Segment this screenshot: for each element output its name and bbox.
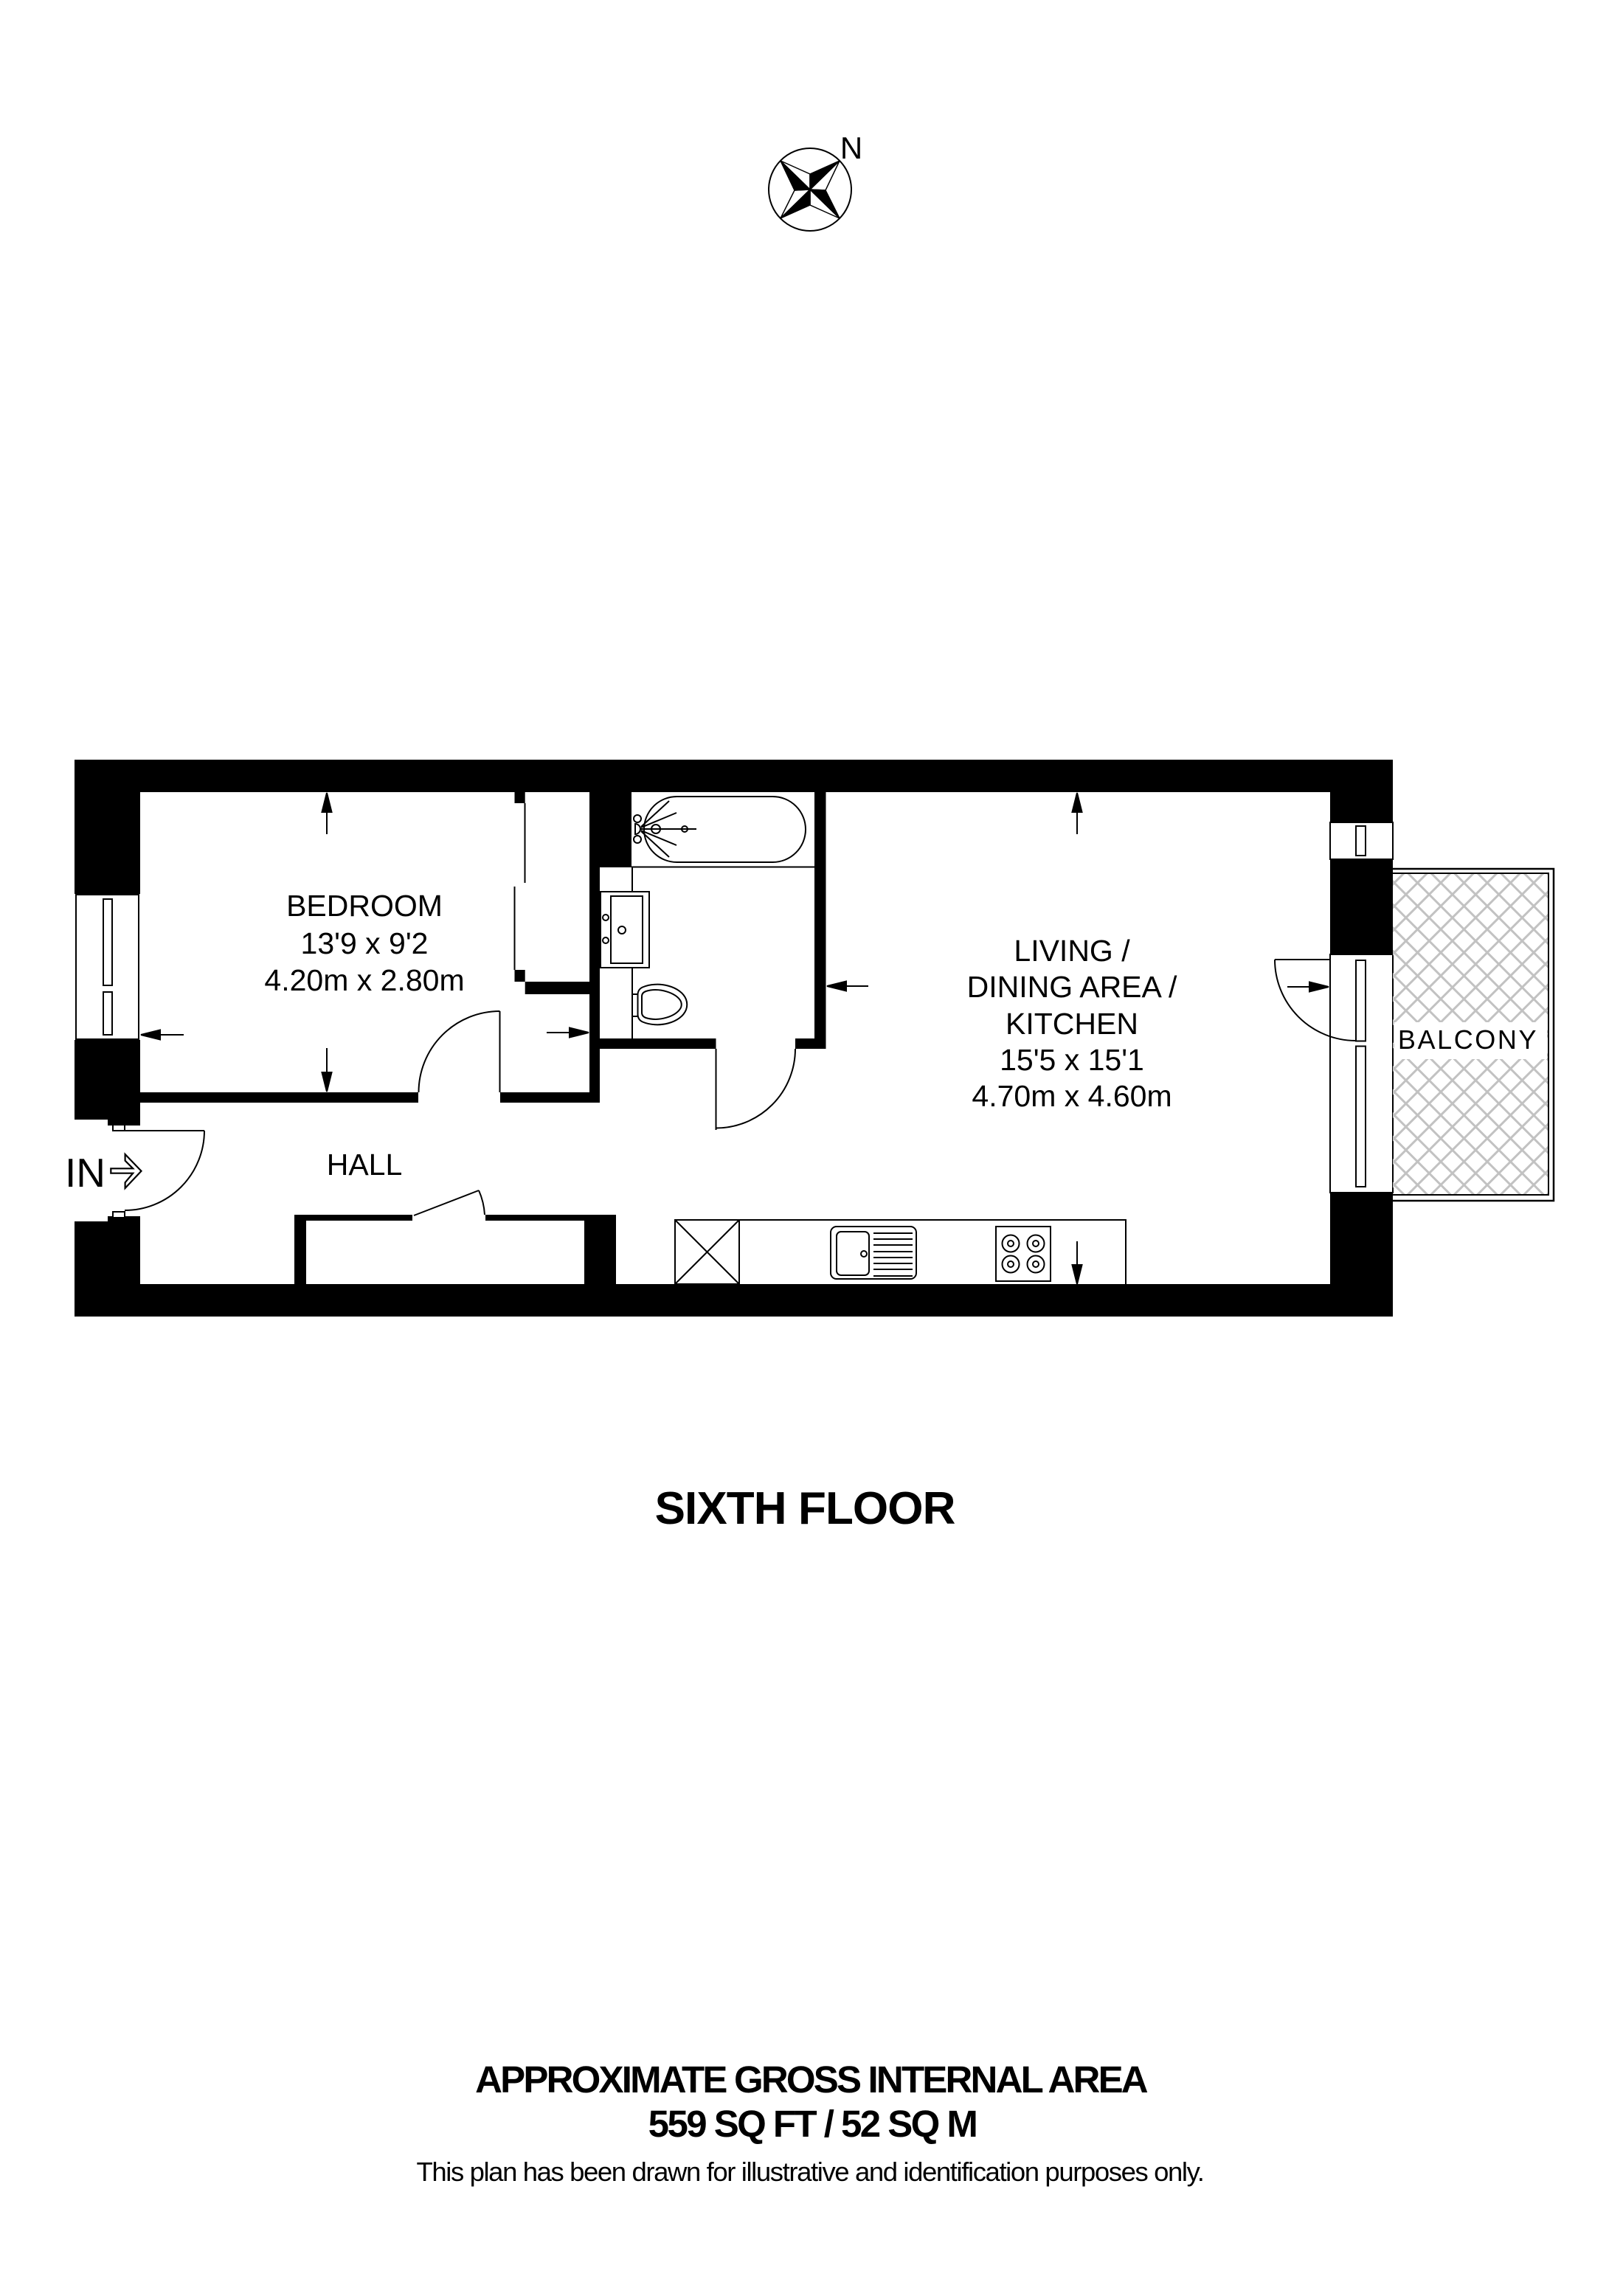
- svg-text:559 SQ FT / 52 SQ M: 559 SQ FT / 52 SQ M: [648, 2103, 977, 2145]
- svg-text:4.70m x 4.60m: 4.70m x 4.60m: [972, 1079, 1172, 1113]
- svg-text:BALCONY: BALCONY: [1398, 1024, 1538, 1055]
- svg-text:SIXTH FLOOR: SIXTH FLOOR: [655, 1483, 955, 1534]
- svg-text:LIVING /: LIVING /: [1014, 934, 1130, 968]
- svg-text:APPROXIMATE GROSS INTERNAL ARE: APPROXIMATE GROSS INTERNAL AREA: [475, 2059, 1148, 2101]
- svg-text:KITCHEN: KITCHEN: [1006, 1007, 1138, 1041]
- svg-text:N: N: [840, 131, 862, 165]
- svg-text:4.20m x 2.80m: 4.20m x 2.80m: [264, 963, 464, 997]
- svg-text:DINING AREA /: DINING AREA /: [967, 970, 1177, 1004]
- svg-text:IN: IN: [65, 1150, 105, 1196]
- svg-text:BEDROOM: BEDROOM: [286, 889, 443, 923]
- svg-text:15'5 x 15'1: 15'5 x 15'1: [1000, 1043, 1144, 1077]
- svg-text:13'9 x 9'2: 13'9 x 9'2: [301, 926, 429, 960]
- svg-text:This plan has been drawn for i: This plan has been drawn for illustrativ…: [416, 2157, 1203, 2187]
- svg-text:HALL: HALL: [327, 1148, 403, 1182]
